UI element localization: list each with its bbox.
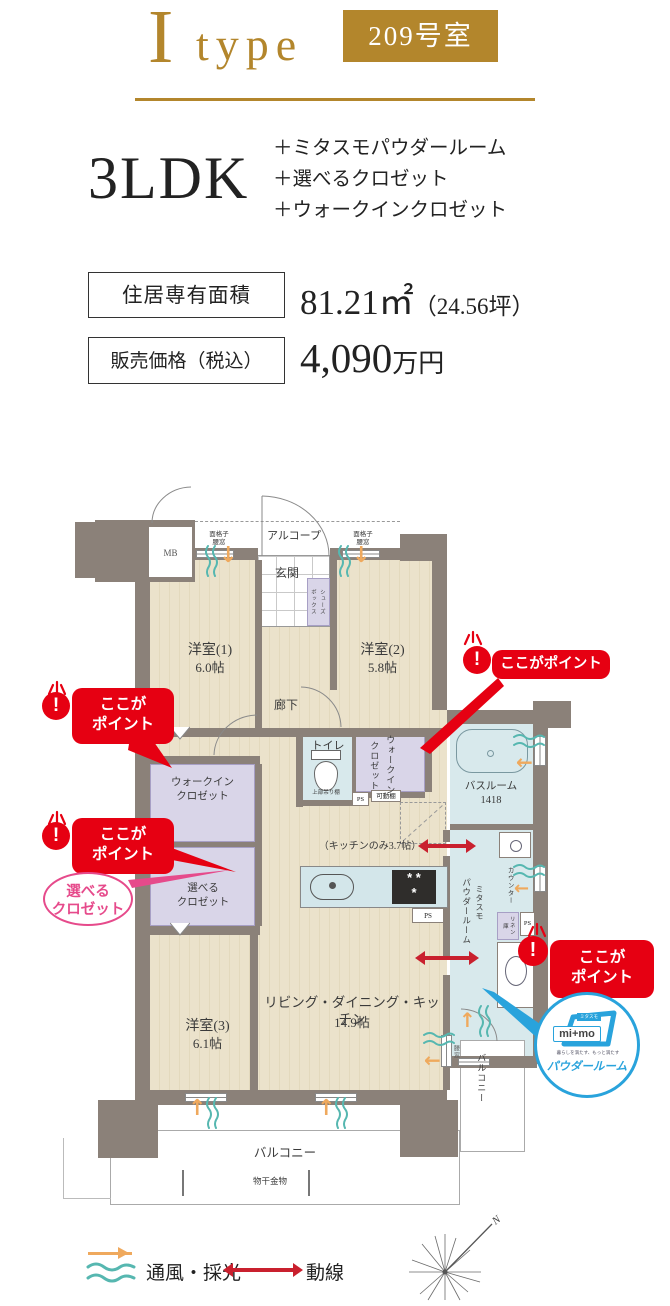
wall [75, 522, 97, 578]
toilet-shelf-label: 上部吊り棚 [301, 790, 351, 797]
wic2-label-1: ウォークイン [384, 734, 395, 796]
bedroom1-size: 6.0帖 [160, 660, 260, 676]
doorway-notch [170, 922, 190, 936]
legend-flow-arrow-icon [232, 1268, 294, 1272]
selectable-badge-pointer [128, 870, 232, 894]
kitchen-faucet [329, 882, 336, 889]
airflow-waves-icon [336, 544, 352, 578]
bedroom3-size: 6.1帖 [160, 1036, 255, 1052]
selectable-closet-label-2: クロゼット [163, 896, 243, 909]
kitchen-stove: * ** [392, 870, 436, 904]
room-number-badge: 209号室 [343, 10, 498, 62]
entrance-door-arc [258, 495, 330, 557]
shoes-box-label-1: シューズ [318, 581, 325, 623]
exclamation-icon: ! [518, 936, 548, 966]
spec-price-unit: 万円 [392, 349, 444, 378]
balcony-label: バルコニー [240, 1146, 330, 1162]
legend-airflow-waves-icon [86, 1260, 138, 1286]
point-badge-pointer [420, 678, 504, 754]
unit-type-letter: I [148, 0, 173, 81]
wall [352, 730, 356, 792]
compass-north-label: N [489, 1213, 503, 1228]
bedroom3-label: 洋室(3) [160, 1018, 255, 1036]
wall [98, 1100, 158, 1158]
airflow-arrow-left-icon: ← [514, 880, 529, 898]
exclamation-icon: ! [463, 646, 491, 674]
spec-price-label: 販売価格（税込） [88, 337, 285, 384]
spec-area-value: 81.21㎡ [300, 283, 414, 322]
bedroom2-label: 洋室(2) [335, 642, 430, 660]
airflow-waves-icon [422, 1030, 456, 1050]
wic2-label-2: クロゼット [368, 738, 379, 794]
mimo-tagline: 暮らしを満たす、もっと満たす [548, 1050, 628, 1056]
bathroom-label: バスルーム [458, 780, 524, 793]
gold-divider [135, 98, 535, 101]
selectable-closet-badge-line2: クロゼット [43, 898, 133, 919]
wall [450, 824, 533, 830]
meter-box: MB [148, 526, 193, 578]
spec-area-sub: （24.56坪） [414, 294, 535, 319]
flyer-page: I type 209号室 3LDK ＋ミタスモパウダールーム ＋選べるクロゼット… [0, 0, 670, 1306]
pipe-space: PS [352, 792, 369, 806]
point-badge: ここがポイント [72, 818, 174, 874]
wall [443, 830, 450, 842]
bedroom2-size: 5.8帖 [335, 660, 430, 676]
spec-area-label: 住居専有面積 [88, 272, 285, 318]
wall [400, 1100, 458, 1157]
refrigerator-diagonal [401, 803, 445, 843]
legend-airflow-arrow-icon [88, 1252, 132, 1255]
powder-brand-label: ミタスモ [474, 883, 484, 923]
laundry-label: 物干金物 [225, 1176, 315, 1187]
laundry-tick [182, 1170, 184, 1196]
toilet-label: トイレ [306, 740, 350, 754]
compass-rose: N [398, 1210, 510, 1302]
entrance-label: 玄関 [266, 566, 308, 581]
airflow-arrow-left-icon: ← [424, 1050, 441, 1070]
linen-label: リネン庫 [501, 914, 515, 938]
flow-arrow [427, 844, 467, 848]
washlet-box [499, 832, 531, 858]
wic1-label-2: クロゼット [160, 790, 245, 803]
shoes-box-label-2: ボックス [309, 581, 316, 623]
bathroom-size: 1418 [458, 794, 524, 807]
feature-line: ＋ミタスモパウダールーム [273, 133, 507, 164]
mimo-brand: mi+mo [553, 1026, 601, 1042]
point-badge-pointer [128, 738, 172, 768]
feature-line: ＋ウォークインクロゼット [273, 195, 507, 226]
alcove-label: アルコープ [265, 530, 323, 544]
bedroom1-label: 洋室(1) [160, 642, 260, 660]
kitchen-note: （キッチンのみ3.7帖） [314, 841, 426, 854]
wall [135, 926, 260, 935]
mimo-brand-small: ミタスモ [577, 1013, 601, 1021]
balcony-right-label: バルコニー [475, 1047, 486, 1109]
airflow-waves-icon [204, 1096, 220, 1130]
pipe-space: PS [412, 908, 444, 923]
legend-flow-label: 動線 [306, 1258, 344, 1285]
point-badge: ここがポイント [492, 650, 610, 679]
bedroom1-door-arc [213, 714, 257, 756]
spec-price-value: 4,090 [300, 335, 392, 381]
point-badge: ここがポイント [72, 688, 174, 744]
fixture-knob [510, 840, 522, 852]
floorplan: MB * ** PS 可動棚 PS PS [0, 470, 670, 1306]
wall [250, 926, 258, 1105]
laundry-tick [308, 1170, 310, 1196]
airflow-waves-icon [203, 544, 219, 578]
unit-type-word: type [196, 18, 303, 71]
sparkle-icon [462, 630, 484, 646]
wall [303, 800, 353, 806]
mb-door-arc [150, 486, 192, 524]
spec-price-value-row: 4,090万円 [300, 334, 444, 382]
corridor-label: 廊下 [260, 698, 312, 713]
refrigerator-space [400, 802, 446, 844]
wall [255, 764, 262, 926]
layout-title: 3LDK [88, 144, 249, 213]
powder-room-label: パウダールーム [461, 874, 472, 948]
airflow-arrow-down-icon: ↓ [219, 545, 237, 567]
airflow-arrow-up-icon: ↑ [459, 1010, 476, 1030]
airflow-arrow-left-icon: ← [516, 752, 533, 772]
wall [400, 534, 447, 561]
airflow-arrow-down-icon: ↓ [352, 545, 370, 567]
feature-list: ＋ミタスモパウダールーム ＋選べるクロゼット ＋ウォークインクロゼット [273, 133, 507, 226]
spec-area-value-row: 81.21㎡（24.56坪） [300, 274, 535, 325]
feature-line: ＋選べるクロゼット [273, 164, 507, 195]
exclamation-icon: ! [42, 692, 70, 720]
flow-arrow [424, 956, 470, 960]
ldk-size: 14.9帖 [262, 1015, 442, 1031]
wic1-label-1: ウォークイン [160, 776, 245, 789]
exclamation-icon: ! [42, 822, 70, 850]
airflow-waves-icon [512, 732, 546, 752]
airflow-waves-icon [333, 1096, 349, 1130]
mimo-label: パウダールーム [544, 1058, 630, 1074]
